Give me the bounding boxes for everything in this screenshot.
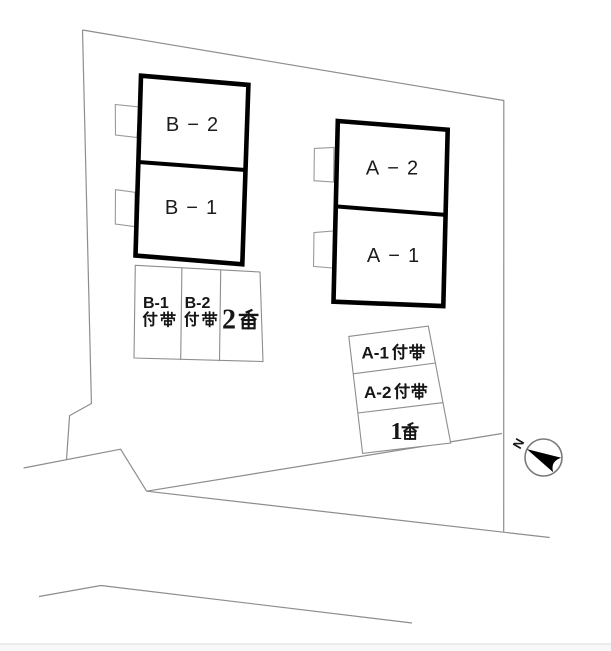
svg-text:B−1: B−1 [165,197,225,219]
svg-text:B-2: B-2 [185,295,211,312]
svg-text:B-1: B-1 [143,295,169,312]
svg-text:1: 1 [391,419,403,445]
svg-text:A-2: A-2 [364,383,391,402]
svg-text:A−1: A−1 [367,245,427,267]
svg-text:A-1: A-1 [362,344,389,363]
svg-text:A−2: A−2 [366,158,426,180]
svg-text:2: 2 [222,305,236,336]
svg-text:B−2: B−2 [166,114,226,136]
